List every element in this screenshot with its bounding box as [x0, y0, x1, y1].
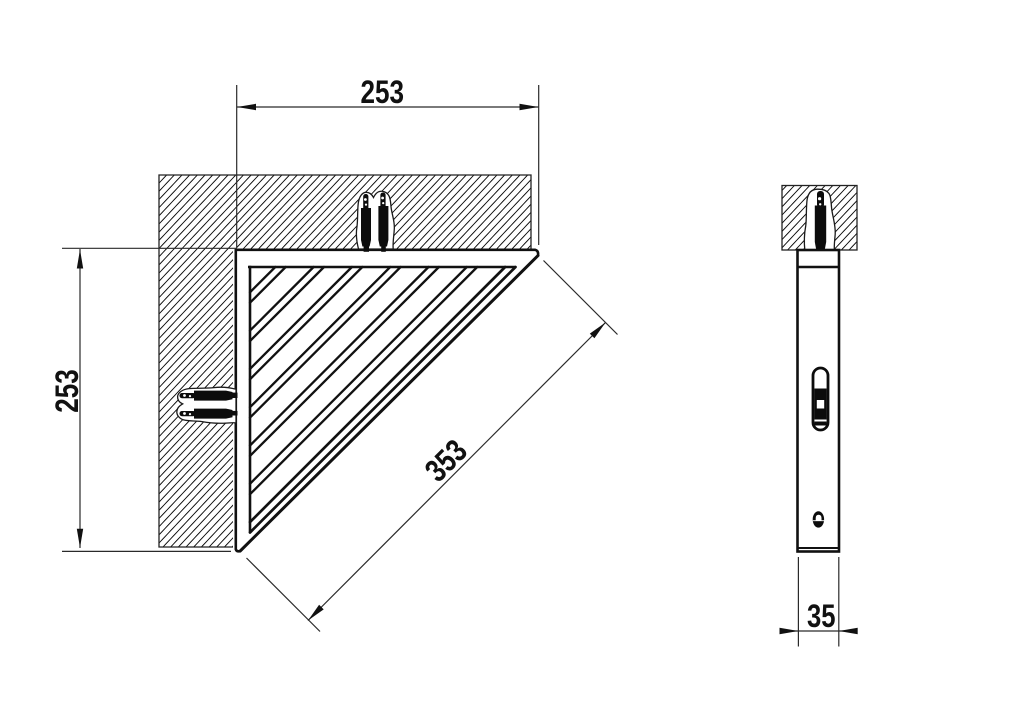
- svg-text:353: 353: [418, 432, 474, 488]
- svg-text:35: 35: [807, 598, 836, 634]
- svg-text:253: 253: [360, 74, 404, 110]
- svg-text:253: 253: [49, 369, 85, 413]
